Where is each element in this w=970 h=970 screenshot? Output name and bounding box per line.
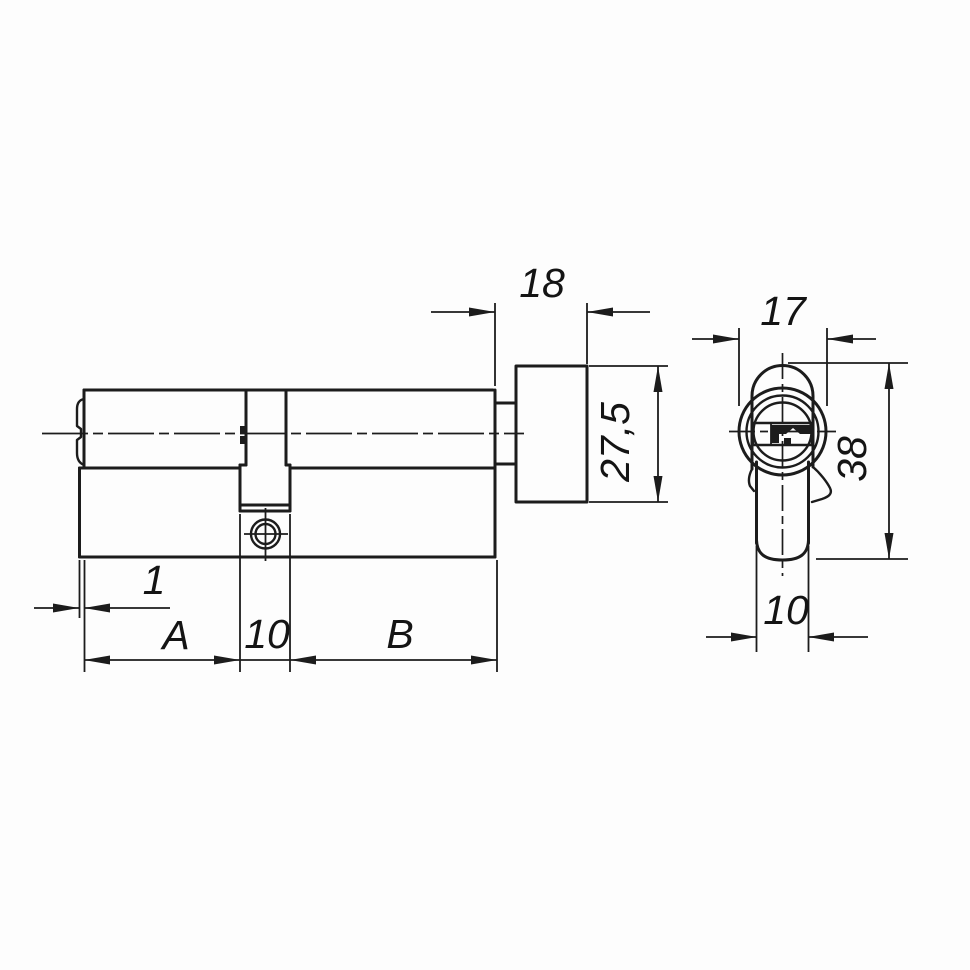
dim-label-18: 18: [519, 260, 565, 306]
drawing-sheet: 18 27,5 1 A 10 B: [0, 0, 970, 970]
dim-label-A: A: [159, 612, 189, 658]
dim-label-10-front: 10: [244, 611, 290, 657]
dim-knob-depth: 18: [431, 260, 650, 317]
front-view: [42, 366, 587, 561]
dim-body-width: 10: [706, 587, 868, 642]
fixing-screw: [244, 508, 288, 561]
dim-label-38: 38: [829, 436, 875, 482]
side-view: [729, 353, 836, 576]
dim-face-step: 1: [34, 557, 170, 613]
dim-label-10-side: 10: [763, 587, 809, 633]
keyway-end-mark: [240, 426, 246, 433]
thumbturn-knob: [516, 366, 587, 502]
dim-label-B: B: [386, 611, 413, 657]
drawing-canvas: 18 27,5 1 A 10 B: [0, 0, 970, 970]
cam-section: [240, 390, 290, 511]
left-tab: [749, 469, 754, 491]
dim-label-17: 17: [760, 288, 808, 334]
dim-knob-height: 27,5: [592, 366, 663, 502]
dim-label-1: 1: [143, 557, 166, 603]
dim-barrel-diameter: 17: [692, 288, 876, 344]
keyway-end-mark: [240, 436, 246, 444]
dimensions-front: 18 27,5 1 A 10 B: [34, 260, 668, 672]
dim-total-height: 38: [829, 363, 894, 559]
dim-label-27-5: 27,5: [592, 402, 638, 483]
